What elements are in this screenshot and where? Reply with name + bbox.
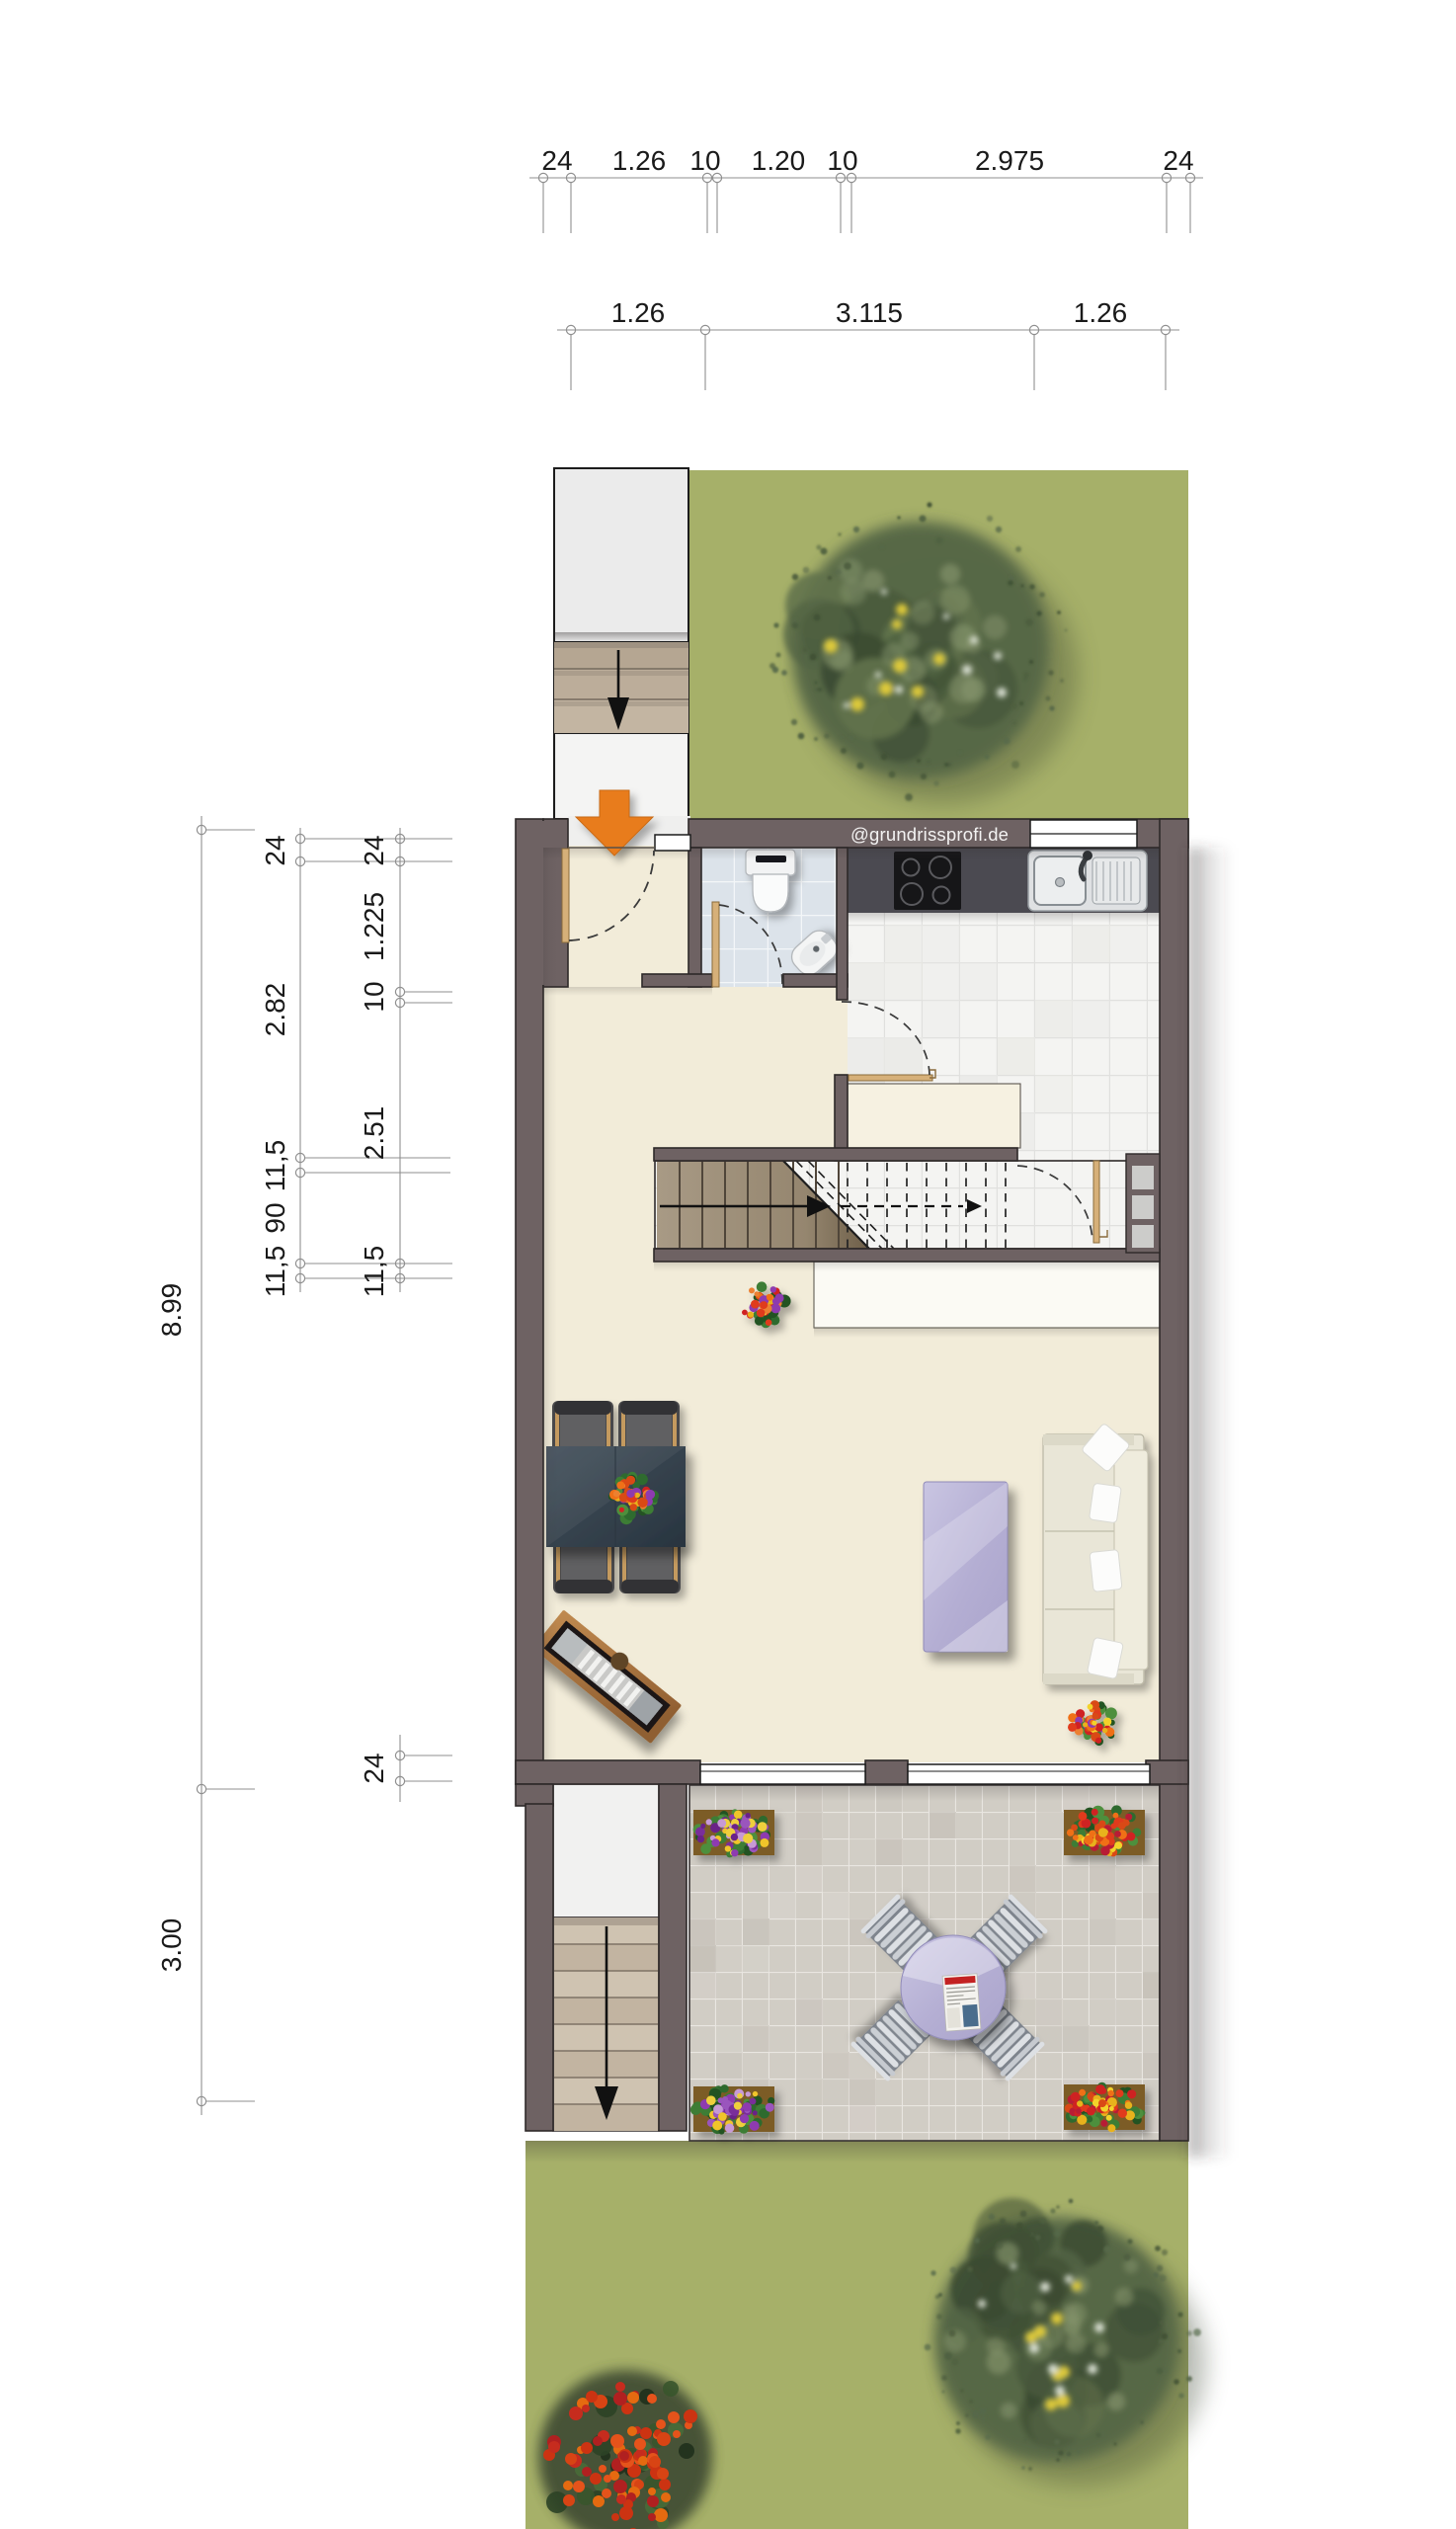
svg-text:24: 24 [1163, 145, 1193, 176]
svg-text:8.99: 8.99 [156, 1283, 187, 1338]
svg-text:10: 10 [827, 145, 857, 176]
svg-text:2.51: 2.51 [359, 1106, 389, 1161]
svg-text:3.00: 3.00 [156, 1918, 187, 1973]
svg-text:24: 24 [260, 835, 290, 865]
svg-text:90: 90 [260, 1202, 290, 1233]
svg-text:3.115: 3.115 [836, 297, 903, 328]
svg-text:11,5: 11,5 [260, 1140, 290, 1191]
svg-text:11,5: 11,5 [260, 1246, 290, 1297]
svg-text:10: 10 [359, 981, 389, 1012]
svg-text:1.26: 1.26 [611, 297, 666, 328]
svg-text:24: 24 [359, 1753, 389, 1783]
svg-text:1.26: 1.26 [1074, 297, 1128, 328]
svg-text:1.26: 1.26 [612, 145, 667, 176]
svg-text:24: 24 [359, 835, 389, 865]
svg-text:24: 24 [541, 145, 572, 176]
svg-text:1.20: 1.20 [752, 145, 806, 176]
svg-text:2.82: 2.82 [260, 983, 290, 1037]
svg-text:2.975: 2.975 [975, 145, 1044, 176]
svg-text:@grundrissprofi.de: @grundrissprofi.de [850, 824, 1009, 845]
svg-text:10: 10 [689, 145, 720, 176]
svg-text:1.225: 1.225 [359, 892, 389, 961]
svg-text:11,5: 11,5 [359, 1246, 389, 1297]
